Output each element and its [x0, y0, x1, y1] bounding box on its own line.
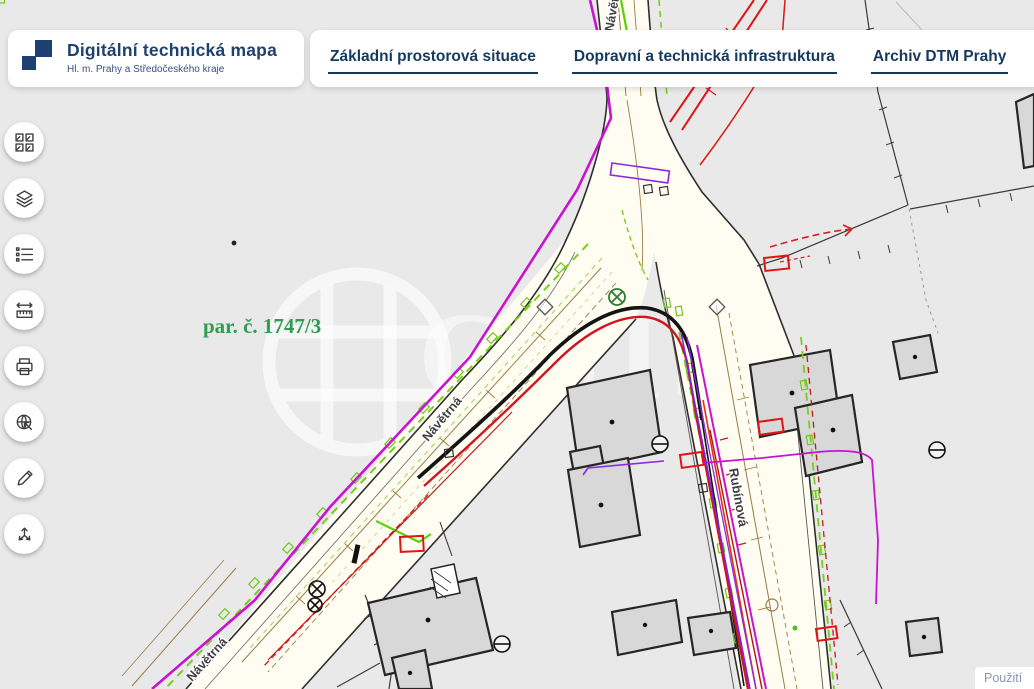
pencil-icon — [15, 469, 34, 488]
dtm-logo-icon — [20, 39, 60, 79]
share-button[interactable] — [4, 514, 44, 554]
layers-button[interactable] — [4, 178, 44, 218]
draw-button[interactable] — [4, 458, 44, 498]
printer-icon — [15, 357, 34, 376]
legend-button[interactable] — [4, 234, 44, 274]
layers-icon — [15, 189, 34, 208]
print-button[interactable] — [4, 346, 44, 386]
locate-button[interactable] — [4, 402, 44, 442]
map-toolbar — [4, 122, 44, 570]
tab-dopravni-a-technicka-infrastruktura[interactable]: Dopravní a technická infrastruktura — [572, 44, 837, 74]
tabs-bar: Základní prostorová situace Dopravní a t… — [310, 30, 1034, 87]
grid-squares-icon — [15, 133, 34, 152]
basemap-gallery-button[interactable] — [4, 122, 44, 162]
tab-archiv-dtm-prahy[interactable]: Archiv DTM Prahy — [871, 44, 1009, 74]
ruler-arrows-icon — [15, 301, 34, 320]
app-subtitle: Hl. m. Prahy a Středočeského kraje — [67, 64, 277, 75]
tab-zakladni-prostorova-situace[interactable]: Základní prostorová situace — [328, 44, 538, 74]
map-canvas[interactable]: CUIŠ — [0, 0, 1034, 689]
globe-arrow-icon — [15, 413, 34, 432]
parcel-number-label: par. č. 1747/3 — [203, 314, 321, 338]
attribution-link[interactable]: Použití — [975, 667, 1034, 689]
brand-card: Digitální technická mapa Hl. m. Prahy a … — [8, 30, 304, 87]
app-title: Digitální technická mapa — [67, 40, 277, 61]
three-arrows-icon — [15, 525, 34, 544]
app: CUIŠ — [0, 0, 1034, 689]
list-icon — [15, 245, 34, 264]
measure-button[interactable] — [4, 290, 44, 330]
